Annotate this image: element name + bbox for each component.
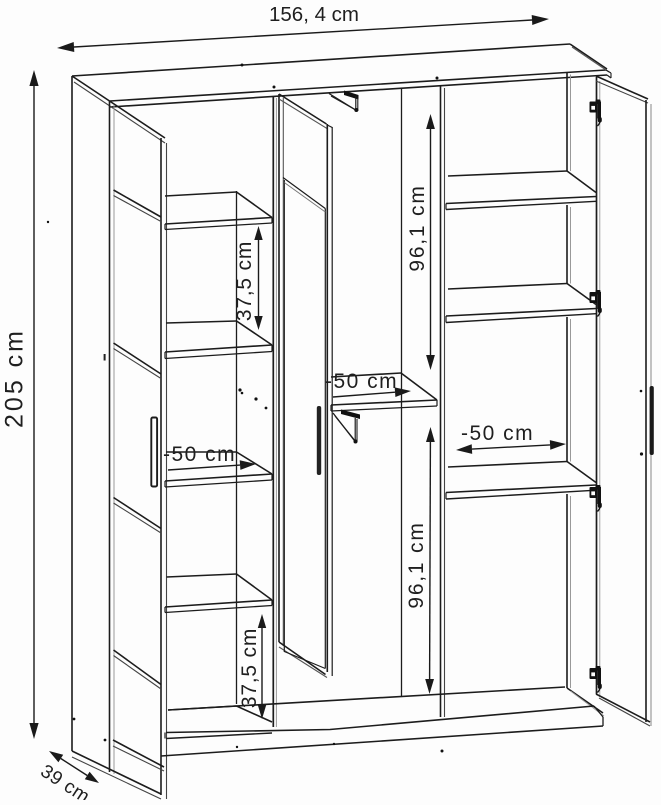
svg-text:37,5 cm: 37,5 cm bbox=[233, 241, 256, 321]
svg-text:-50 cm: -50 cm bbox=[325, 370, 398, 393]
svg-text:205 cm: 205 cm bbox=[1, 328, 29, 428]
svg-text:96,1 cm: 96,1 cm bbox=[406, 184, 429, 271]
svg-text:156, 4 cm: 156, 4 cm bbox=[269, 3, 359, 26]
svg-text:-50 cm: -50 cm bbox=[163, 443, 236, 466]
svg-text:-50 cm: -50 cm bbox=[461, 422, 534, 445]
svg-text:37,5 cm: 37,5 cm bbox=[238, 628, 261, 708]
svg-text:96,1 cm: 96,1 cm bbox=[405, 521, 428, 608]
